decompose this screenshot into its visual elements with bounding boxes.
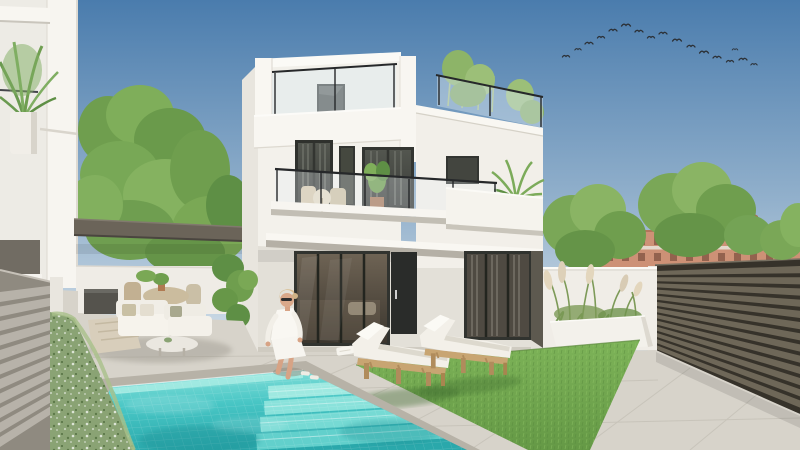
sofa-seat bbox=[118, 314, 172, 336]
sunglasses bbox=[281, 298, 292, 301]
villa-scene bbox=[0, 0, 800, 450]
neighbor-window bbox=[0, 240, 40, 274]
coffee-table bbox=[146, 336, 198, 352]
boundary-wall-planter bbox=[542, 261, 657, 353]
door-handle bbox=[395, 290, 397, 299]
villa-scene-svg bbox=[0, 0, 800, 450]
storage-box bbox=[84, 291, 118, 314]
neighbor-villa bbox=[0, 0, 78, 288]
roof-corner-pillar-right bbox=[400, 56, 416, 162]
entry-door bbox=[391, 252, 417, 334]
